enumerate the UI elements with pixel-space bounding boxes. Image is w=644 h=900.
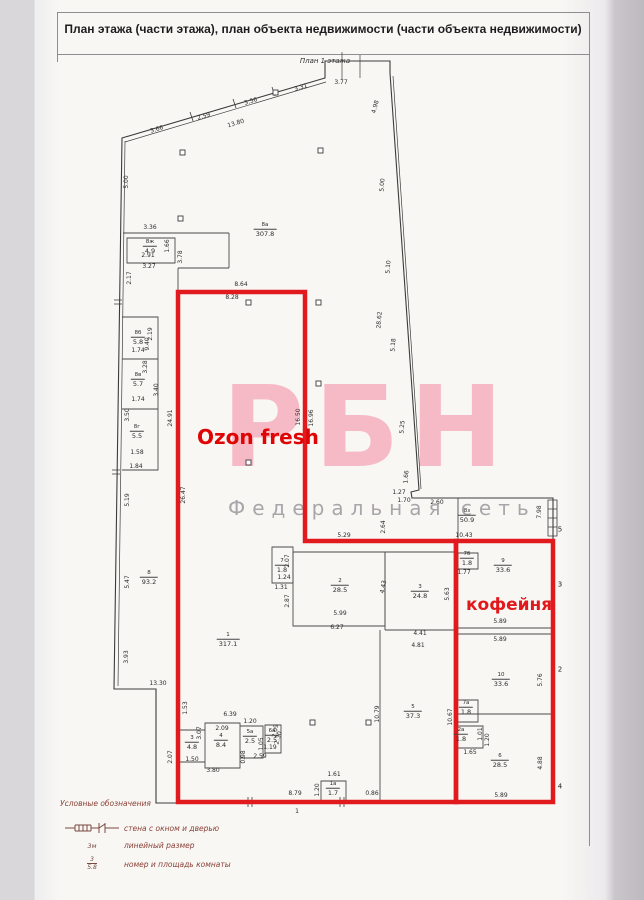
legend-room-label: номер и площадь комнаты — [124, 860, 231, 869]
room-number: 4 — [219, 734, 223, 740]
room-area: 24.8 — [411, 591, 429, 600]
room-area: 1.7 — [326, 788, 340, 797]
room-number: 2 — [338, 579, 342, 585]
room-area: 5.7 — [131, 379, 145, 388]
dimension-label: 8.64 — [234, 282, 247, 288]
room-number: 2а — [458, 728, 465, 734]
dimension-label: 2.09 — [215, 726, 228, 732]
room-number: 8б — [135, 331, 142, 337]
dimension-label: 13.30 — [149, 681, 166, 687]
dimension-label: 6.27 — [330, 625, 343, 631]
dimension-label: 5.00 — [380, 178, 387, 192]
room-area: 4.8 — [185, 742, 199, 751]
room-area: 1.8 — [459, 707, 473, 716]
room-number: 8з — [464, 509, 470, 515]
dimension-label: 5.10 — [386, 260, 393, 274]
dimension-label: 8.79 — [288, 791, 301, 797]
ozon-fresh-label: Ozon fresh — [197, 425, 319, 449]
dimension-label: 3.50 — [125, 408, 131, 421]
dimension-label: 1.84 — [129, 464, 142, 470]
legend: Условные обозначения стена с окном и две… — [60, 799, 231, 878]
room-number: 10 — [497, 673, 504, 679]
legend-room-area: 5.8 — [87, 863, 97, 871]
dimension-label: 7.98 — [537, 505, 543, 518]
room-number: 8г — [134, 425, 140, 431]
dimension-label: 28.62 — [376, 311, 383, 329]
dimension-label: 3.36 — [143, 225, 156, 231]
room-area: 50.9 — [458, 515, 476, 524]
room-number: 8ж — [146, 240, 154, 246]
dimension-label: 1.31 — [274, 585, 287, 591]
dimension-label: 1.58 — [130, 450, 143, 456]
room-number-area-label: 7б1.8 — [460, 552, 474, 567]
dimension-label: 3.28 — [143, 360, 149, 373]
dimension-label: 4.41 — [413, 631, 426, 637]
wall-window-door-symbol — [60, 822, 124, 834]
dimension-label: 10.67 — [448, 708, 454, 725]
room-number: 7а — [463, 701, 470, 707]
room-number-area-label: 8г5.5 — [130, 425, 144, 440]
dimension-label: 5.18 — [391, 338, 398, 352]
room-number-area-label: 5а2.5 — [243, 730, 257, 745]
dimension-label: 1.27 — [392, 490, 405, 496]
room-number-area-label: 1033.6 — [492, 673, 510, 688]
legend-linear-label: линейный размер — [124, 841, 195, 850]
entrance-number-label: 5 — [558, 527, 562, 534]
entrance-number-label: 2 — [558, 667, 562, 674]
room-number-area-label: 1а1.7 — [326, 782, 340, 797]
dimension-label: 3.77 — [334, 80, 347, 86]
room-number: 9 — [501, 559, 505, 565]
dimension-label: 1.61 — [327, 772, 340, 778]
room-number: 7б — [464, 552, 471, 558]
legend-wall-label: стена с окном и дверью — [124, 824, 219, 833]
room-number: 5а — [247, 730, 254, 736]
dimension-label: 5.89 — [493, 619, 506, 625]
dimension-label: 1.65 — [463, 750, 476, 756]
dimension-label: 2.87 — [285, 594, 291, 607]
dimension-label: 16.50 — [296, 408, 302, 425]
room-number-area-label: 933.6 — [494, 559, 512, 574]
dimension-label: 3.40 — [154, 383, 160, 396]
dimension-label: 2.17 — [127, 271, 133, 284]
entrance-number-label: 3 — [558, 582, 562, 589]
room-number: 3 — [418, 585, 422, 591]
room-area: 5.8 — [131, 337, 145, 346]
dimension-label: 6.39 — [223, 712, 236, 718]
dimension-label: 16.96 — [309, 409, 315, 426]
room-number: 8 — [147, 571, 151, 577]
dimension-label: 3.78 — [178, 250, 184, 263]
dimension-label: 1.74 — [131, 348, 144, 354]
room-area: 4.9 — [143, 246, 157, 255]
dimension-label: 5.00 — [124, 175, 130, 188]
dimension-label: 1.66 — [165, 239, 171, 252]
dimension-label: 1.20 — [485, 733, 491, 746]
room-area: 28.5 — [491, 760, 509, 769]
room-area: 28.5 — [331, 585, 349, 594]
dimension-label: 5.29 — [337, 533, 350, 539]
dimension-label: 1 — [295, 809, 299, 815]
room-number-area-label: 8б5.8 — [131, 331, 145, 346]
cafe-label: кофейня — [466, 595, 552, 615]
dimension-label: 2.60 — [430, 500, 443, 506]
room-area: 33.6 — [494, 565, 512, 574]
dimension-label: 5.19 — [125, 493, 131, 506]
room-number-area-label: 228.5 — [331, 579, 349, 594]
room-number: 5 — [411, 705, 415, 711]
legend-row-wall: стена с окном и дверью — [60, 822, 231, 834]
room-number: 3 — [190, 736, 194, 742]
dimension-label: 5.47 — [125, 575, 131, 588]
room-area: 5.5 — [130, 431, 144, 440]
dimension-label: 2.59 — [253, 754, 266, 760]
room-area: 33.6 — [492, 679, 510, 688]
dimension-label: 3.27 — [142, 264, 155, 270]
dimension-label: 1.24 — [277, 575, 290, 581]
legend-row-room: 3 5.8 номер и площадь комнаты — [60, 857, 231, 871]
entrance-number-label: 4 — [558, 784, 562, 791]
dimension-label: 10.79 — [375, 705, 381, 722]
scanned-floorplan-page: План этажа (части этажа), план объекта н… — [0, 0, 644, 900]
dimension-label: 0.98 — [241, 750, 247, 763]
dimension-label: 4.88 — [538, 756, 544, 769]
room-area: 1.8 — [454, 734, 468, 743]
dimension-label: 1.20 — [243, 719, 256, 725]
room-number-area-label: 628.5 — [491, 754, 509, 769]
room-number: 8в — [135, 373, 142, 379]
room-number-area-label: 7а1.8 — [459, 701, 473, 716]
room-number: 7 — [280, 559, 284, 565]
room-area: 317.1 — [217, 639, 240, 648]
interior-walls — [122, 233, 553, 803]
room-number-area-label: 2а1.8 — [454, 728, 468, 743]
room-area: 2.5 — [265, 735, 279, 744]
dimension-label: 5.76 — [538, 673, 544, 686]
room-number-area-label: 6а2.5 — [265, 729, 279, 744]
dimension-label: 1.77 — [457, 570, 470, 576]
room-area: 93.2 — [140, 577, 158, 586]
room-area: 1.8 — [460, 558, 474, 567]
room-number-area-label: 48.4 — [214, 734, 228, 749]
dimension-label: 5.25 — [400, 420, 407, 434]
room-area: 307.8 — [254, 229, 277, 238]
dimension-label: 2.07 — [168, 750, 174, 763]
dimension-label: 1.74 — [131, 397, 144, 403]
room-number: 8а — [262, 223, 269, 229]
dimension-label: 24.91 — [168, 409, 174, 426]
room-number: 6 — [498, 754, 502, 760]
dimension-label: 26.47 — [181, 486, 187, 503]
room-number-area-label: 34.8 — [185, 736, 199, 751]
red-lease-outlines — [178, 292, 553, 802]
room-number-area-label: 537.3 — [404, 705, 422, 720]
room-area: 37.3 — [404, 711, 422, 720]
dimension-label: 3.80 — [206, 768, 219, 774]
room-number: 6а — [269, 729, 276, 735]
floorplan-drawing — [0, 0, 644, 900]
room-area: 8.4 — [214, 740, 228, 749]
dimension-label: 1.53 — [183, 701, 189, 714]
dimension-label: 0.86 — [365, 791, 378, 797]
room-number-area-label: 8а307.8 — [254, 223, 277, 238]
room-number-area-symbol: 3 5.8 — [60, 857, 124, 871]
dimension-label: 5.89 — [494, 793, 507, 799]
dimension-label: 2.64 — [381, 520, 387, 533]
dimension-label: 4.81 — [411, 643, 424, 649]
dimension-label: 9.40 — [145, 337, 151, 350]
room-number: 1 — [226, 633, 230, 639]
dimension-label: 1.70 — [397, 498, 410, 504]
dimension-label: 1.19 — [263, 745, 276, 751]
room-number-area-label: 1317.1 — [217, 633, 240, 648]
dimension-label: 1.20 — [315, 783, 321, 796]
room-number-area-label: 8з50.9 — [458, 509, 476, 524]
room-area: 2.5 — [243, 736, 257, 745]
room-number-area-label: 324.8 — [411, 585, 429, 600]
dimension-label: 1.50 — [185, 757, 198, 763]
dimension-label: 3.93 — [124, 650, 130, 663]
legend-row-linear: 3м линейный размер — [60, 841, 231, 850]
room-area: 1.8 — [275, 565, 289, 574]
room-number-area-label: 8в5.7 — [131, 373, 145, 388]
linear-dimension-symbol: 3м — [60, 842, 124, 850]
dimension-label: 10.43 — [455, 533, 472, 539]
room-number: 1а — [330, 782, 337, 788]
dimension-label: 8.28 — [225, 295, 238, 301]
dimension-label: 5.99 — [333, 611, 346, 617]
room-number-area-label: 893.2 — [140, 571, 158, 586]
room-number-area-label: 8ж4.9 — [143, 240, 157, 255]
dimension-label: 5.63 — [445, 587, 451, 600]
dimension-label: 5.89 — [493, 637, 506, 643]
room-number-area-label: 71.8 — [275, 559, 289, 574]
dimension-label: 1.66 — [404, 470, 411, 484]
legend-title: Условные обозначения — [60, 799, 231, 808]
